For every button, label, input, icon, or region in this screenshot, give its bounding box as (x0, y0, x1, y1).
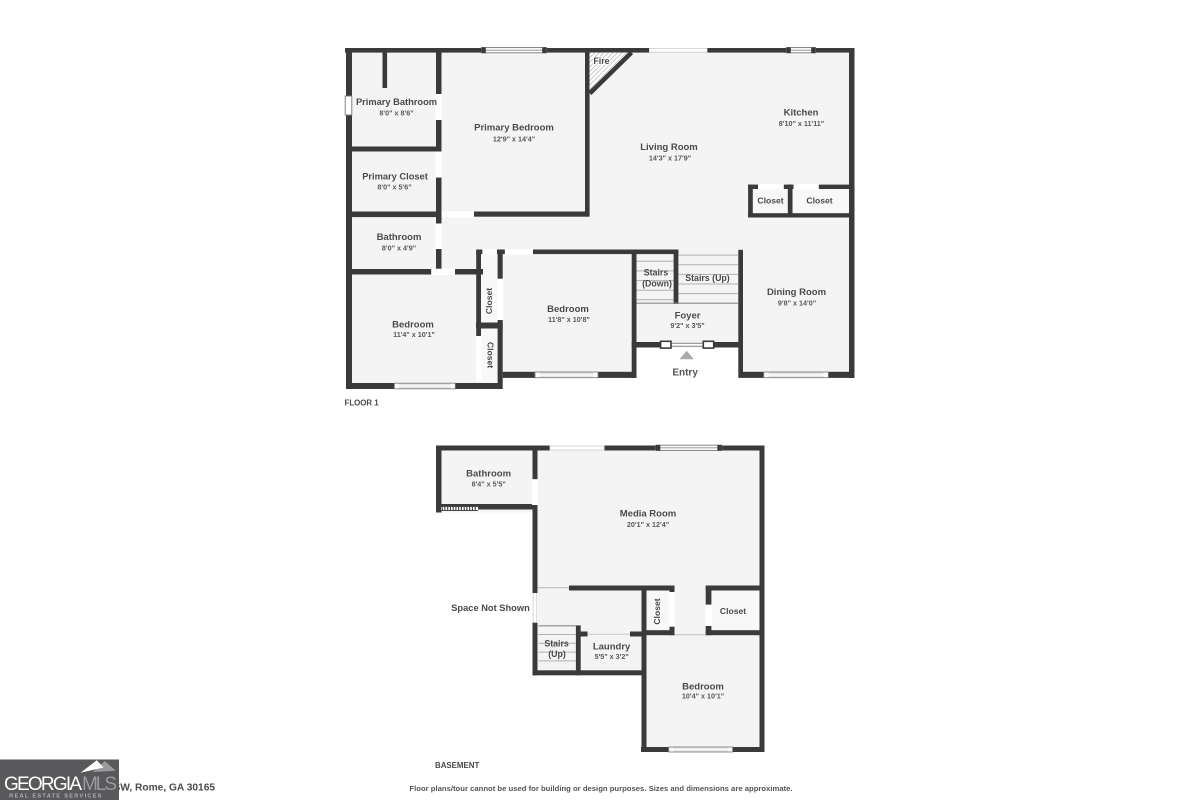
svg-text:Bedroom: Bedroom (547, 304, 589, 315)
svg-text:Closet: Closet (806, 196, 832, 206)
svg-text:Laundry: Laundry (593, 642, 631, 653)
svg-text:Media Room: Media Room (620, 509, 676, 520)
svg-text:(Up): (Up) (548, 649, 566, 659)
svg-text:20'1" x 12'4": 20'1" x 12'4" (627, 520, 669, 529)
svg-text:Space Not Shown: Space Not Shown (451, 603, 530, 613)
svg-text:Closet: Closet (757, 196, 783, 206)
svg-text:Primary Bedroom: Primary Bedroom (474, 123, 554, 134)
svg-text:FLOOR 1: FLOOR 1 (345, 398, 380, 407)
svg-text:11'8" x 10'8": 11'8" x 10'8" (548, 315, 590, 324)
svg-text:MLS: MLS (82, 774, 117, 795)
svg-text:8'0" x 4'9": 8'0" x 4'9" (382, 244, 416, 253)
svg-text:Living Room: Living Room (640, 142, 698, 153)
svg-text:Primary Closet: Primary Closet (362, 172, 428, 182)
svg-text:5'5" x 3'2": 5'5" x 3'2" (595, 652, 629, 661)
svg-text:GEORGIA: GEORGIA (4, 774, 82, 795)
svg-text:14'3" x 17'9": 14'3" x 17'9" (649, 154, 691, 163)
svg-text:(Down): (Down) (642, 279, 672, 289)
svg-text:Fire: Fire (593, 56, 609, 66)
svg-text:Kitchen: Kitchen (784, 108, 819, 119)
svg-text:Stairs: Stairs (544, 639, 569, 649)
svg-text:Entry: Entry (672, 368, 698, 379)
svg-text:9'2" x 3'5": 9'2" x 3'5" (670, 321, 704, 330)
svg-text:8'10" x 11'11": 8'10" x 11'11" (779, 119, 824, 128)
svg-text:Primary Bathroom: Primary Bathroom (356, 97, 437, 107)
svg-text:10'4" x 10'1": 10'4" x 10'1" (682, 692, 724, 701)
svg-text:Bedroom: Bedroom (392, 320, 434, 331)
svg-text:BASEMENT: BASEMENT (435, 761, 479, 770)
svg-text:Closet: Closet (652, 598, 662, 624)
svg-text:8'0" x 8'6": 8'0" x 8'6" (379, 109, 413, 118)
svg-text:Bathroom: Bathroom (466, 469, 511, 480)
svg-text:Stairs: Stairs (644, 268, 669, 278)
svg-text:9'8" x 14'0": 9'8" x 14'0" (778, 299, 816, 308)
svg-text:Foyer: Foyer (675, 311, 701, 322)
svg-text:8'0" x 5'6": 8'0" x 5'6" (377, 183, 411, 192)
svg-text:12'9" x 14'4": 12'9" x 14'4" (493, 135, 535, 144)
svg-text:SW, Rome, GA 30165: SW, Rome, GA 30165 (114, 783, 216, 794)
svg-text:11'4" x 10'1": 11'4" x 10'1" (393, 330, 435, 339)
svg-text:Dining Room: Dining Room (767, 287, 826, 298)
svg-text:8'4" x 5'5": 8'4" x 5'5" (472, 480, 506, 489)
svg-text:Floor plans/tour cannot be use: Floor plans/tour cannot be used for buil… (409, 784, 792, 793)
svg-text:REAL ESTATE SERVICES: REAL ESTATE SERVICES (9, 794, 103, 800)
svg-text:Closet: Closet (486, 342, 496, 368)
svg-text:Stairs (Up): Stairs (Up) (685, 273, 730, 283)
svg-text:Closet: Closet (720, 606, 746, 616)
svg-text:Closet: Closet (484, 288, 494, 314)
svg-text:Bathroom: Bathroom (377, 232, 422, 243)
